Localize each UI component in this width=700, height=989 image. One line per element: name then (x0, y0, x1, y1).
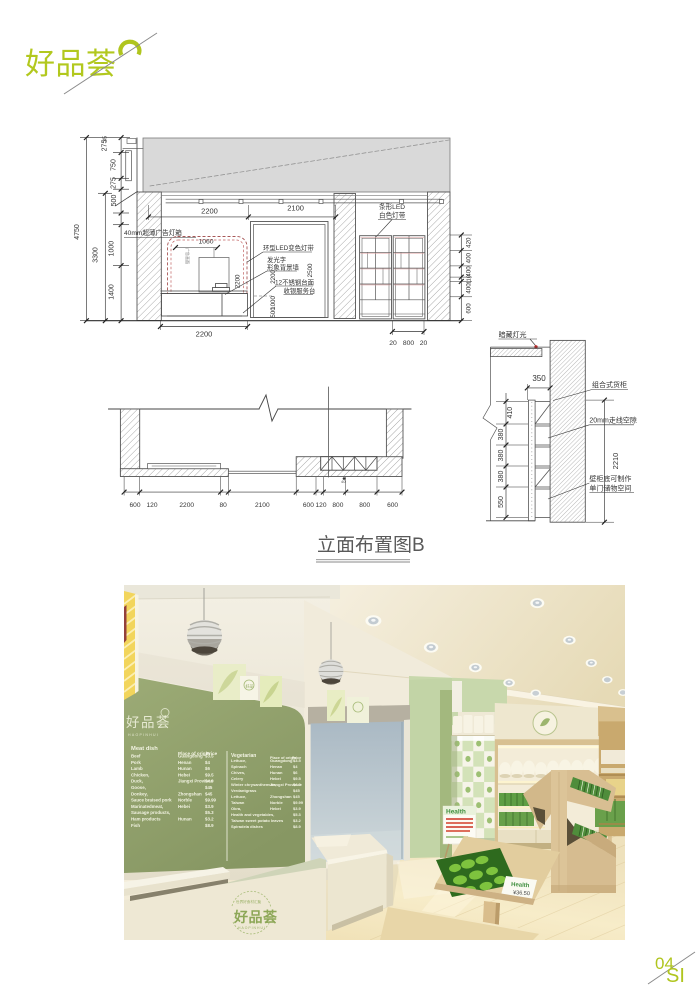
svg-text:HAOPINHUI: HAOPINHUI (128, 733, 159, 737)
svg-text:750: 750 (111, 159, 118, 171)
svg-text:Duck,: Duck, (131, 779, 143, 784)
svg-text:380: 380 (498, 429, 505, 441)
svg-text:$5.3: $5.3 (205, 810, 214, 815)
svg-text:好品荟: 好品荟 (25, 48, 117, 81)
svg-text:$5.3: $5.3 (293, 812, 302, 817)
svg-text:1400: 1400 (109, 284, 116, 300)
svg-text:Pork: Pork (131, 760, 141, 765)
svg-text:立面布置图B: 立面布置图B (317, 534, 425, 556)
svg-text:$45: $45 (205, 791, 213, 796)
svg-text:$3.9: $3.9 (293, 806, 302, 811)
svg-text:Health and vegetables,: Health and vegetables, (231, 812, 274, 817)
svg-text:$45: $45 (293, 788, 300, 793)
svg-text:SI: SI (666, 965, 685, 987)
svg-text:400: 400 (466, 266, 473, 277)
svg-text:Lamb: Lamb (131, 766, 143, 771)
svg-text:Celery: Celery (231, 776, 244, 781)
svg-text:80: 80 (220, 502, 228, 509)
svg-text:Hebei: Hebei (178, 772, 190, 777)
svg-text:800: 800 (332, 502, 343, 509)
svg-text:2100: 2100 (287, 204, 304, 213)
svg-text:$3.5: $3.5 (205, 754, 214, 759)
svg-text:$4: $4 (293, 764, 298, 769)
svg-text:110: 110 (467, 275, 473, 284)
svg-text:Norble: Norble (178, 798, 192, 803)
svg-text:HAOPINHUI: HAOPINHUI (238, 926, 266, 930)
svg-text:Ham products: Ham products (131, 817, 161, 822)
svg-text:$8.9: $8.9 (205, 823, 214, 828)
svg-text:环型LED变色灯带: 环型LED变色灯带 (263, 243, 314, 252)
svg-text:600: 600 (466, 303, 473, 314)
svg-text:好品荟: 好品荟 (233, 909, 278, 925)
svg-text:Henan: Henan (178, 760, 192, 765)
svg-text:Guangdong: Guangdong (270, 758, 293, 763)
svg-text:$3.2: $3.2 (205, 817, 214, 822)
svg-text:Taiwan sweet potato leaves: Taiwan sweet potato leaves (231, 818, 284, 823)
svg-text:条形LED: 条形LED (379, 202, 405, 211)
svg-text:Sausage products,: Sausage products, (131, 810, 170, 815)
svg-text:4750: 4750 (74, 224, 81, 240)
svg-text:Beef: Beef (131, 754, 141, 759)
svg-text:2200: 2200 (201, 207, 218, 216)
svg-text:$3.2: $3.2 (293, 818, 302, 823)
svg-text:$9.99: $9.99 (293, 800, 304, 805)
svg-text:$3.5: $3.5 (293, 758, 302, 763)
svg-text:Zhongshan: Zhongshan (270, 794, 292, 799)
svg-text:$6: $6 (293, 770, 298, 775)
svg-text:Chicken,: Chicken, (131, 772, 149, 777)
svg-text:Health: Health (446, 809, 466, 816)
svg-text:$8.9: $8.9 (293, 824, 302, 829)
svg-text:$9.5: $9.5 (293, 776, 302, 781)
svg-text:Hunan: Hunan (270, 770, 283, 775)
svg-text:Meat dish: Meat dish (131, 746, 158, 752)
svg-text:20: 20 (389, 340, 397, 347)
svg-text:2200: 2200 (196, 330, 213, 339)
svg-text:500: 500 (270, 307, 277, 318)
svg-text:白色灯带: 白色灯带 (379, 211, 406, 220)
svg-text:Lettuce,: Lettuce, (231, 794, 246, 799)
svg-text:Hebei: Hebei (270, 806, 281, 811)
svg-text:Taiwan: Taiwan (231, 800, 245, 805)
svg-text:600: 600 (303, 502, 314, 509)
svg-text:380: 380 (498, 471, 505, 483)
svg-text:120: 120 (146, 502, 157, 509)
svg-text:500: 500 (111, 195, 118, 207)
svg-text:350: 350 (532, 374, 546, 383)
svg-text:Lettuce,: Lettuce, (231, 758, 246, 763)
svg-text:20mm走线空隙: 20mm走线空隙 (589, 416, 636, 425)
svg-text:发光字: 发光字 (267, 255, 286, 264)
svg-text:35: 35 (103, 136, 109, 142)
svg-text:Donkey,: Donkey, (131, 791, 148, 796)
svg-text:$45: $45 (205, 785, 213, 790)
svg-text:Chives,: Chives, (231, 770, 245, 775)
svg-text:Spinach: Spinach (231, 764, 247, 769)
svg-text:550: 550 (498, 496, 505, 508)
svg-text:2200: 2200 (235, 274, 242, 288)
svg-text:120: 120 (315, 502, 326, 509)
svg-text:2100: 2100 (255, 502, 270, 509)
svg-text:400: 400 (466, 252, 473, 263)
svg-text:20: 20 (420, 340, 428, 347)
svg-text:$4.9: $4.9 (205, 779, 214, 784)
svg-text:600: 600 (387, 502, 398, 509)
svg-text:420: 420 (466, 237, 473, 248)
svg-text:Henan: Henan (270, 764, 283, 769)
svg-text:Guangdong: Guangdong (178, 754, 203, 759)
svg-text:$9.5: $9.5 (205, 772, 214, 777)
svg-text:$9.99: $9.99 (205, 798, 217, 803)
svg-text:Hebei: Hebei (270, 776, 281, 781)
svg-text:广告画面: 广告画面 (185, 248, 191, 264)
svg-text:Hunan: Hunan (178, 766, 192, 771)
svg-text:40: 40 (341, 479, 346, 484)
svg-text:40mm超薄广告灯箱: 40mm超薄广告灯箱 (124, 228, 182, 237)
svg-text:收银服务台: 收银服务台 (284, 286, 316, 295)
svg-text:$4.9: $4.9 (293, 782, 302, 787)
svg-text:800: 800 (403, 340, 415, 347)
svg-text:Goose,: Goose, (131, 785, 146, 790)
svg-text:Norble: Norble (270, 800, 283, 805)
svg-text:2200: 2200 (179, 502, 194, 509)
svg-text:Verdantgrass: Verdantgrass (231, 788, 257, 793)
svg-text:3300: 3300 (93, 247, 100, 263)
svg-text:1060: 1060 (198, 239, 213, 246)
svg-text:Okra,: Okra, (231, 806, 241, 811)
svg-text:世界好食材汇聚: 世界好食材汇聚 (236, 899, 262, 904)
svg-text:1000: 1000 (109, 241, 116, 257)
svg-text:2200: 2200 (270, 269, 277, 283)
svg-text:组合式货柜: 组合式货柜 (592, 380, 627, 389)
svg-text:12不锈钢台面: 12不锈钢台面 (275, 278, 315, 287)
svg-text:单门储物空间: 单门储物空间 (589, 484, 631, 493)
svg-text:$6: $6 (205, 766, 210, 771)
svg-text:Fish: Fish (131, 823, 140, 828)
svg-text:275: 275 (111, 177, 118, 189)
svg-text:2210: 2210 (611, 453, 620, 470)
svg-text:暗藏灯光: 暗藏灯光 (499, 330, 527, 339)
svg-text:800: 800 (359, 502, 370, 509)
svg-text:Hebei: Hebei (178, 804, 190, 809)
svg-text:Zhongshan: Zhongshan (178, 791, 202, 796)
svg-text:$45: $45 (293, 794, 300, 799)
svg-text:Spiradela dishes: Spiradela dishes (231, 824, 264, 829)
svg-text:Hunan: Hunan (178, 817, 192, 822)
svg-text:410: 410 (507, 407, 514, 419)
svg-text:Marinatedmeat,: Marinatedmeat, (131, 804, 163, 809)
svg-text:好品: 好品 (246, 683, 254, 689)
svg-text:Sauce braised pork: Sauce braised pork (131, 798, 172, 803)
svg-text:600: 600 (129, 502, 140, 509)
svg-text:$3.9: $3.9 (205, 804, 214, 809)
svg-text:2500: 2500 (307, 263, 314, 277)
svg-text:$4: $4 (205, 760, 210, 765)
svg-text:壁柜底可制作: 壁柜底可制作 (589, 474, 631, 483)
svg-text:380: 380 (498, 450, 505, 462)
